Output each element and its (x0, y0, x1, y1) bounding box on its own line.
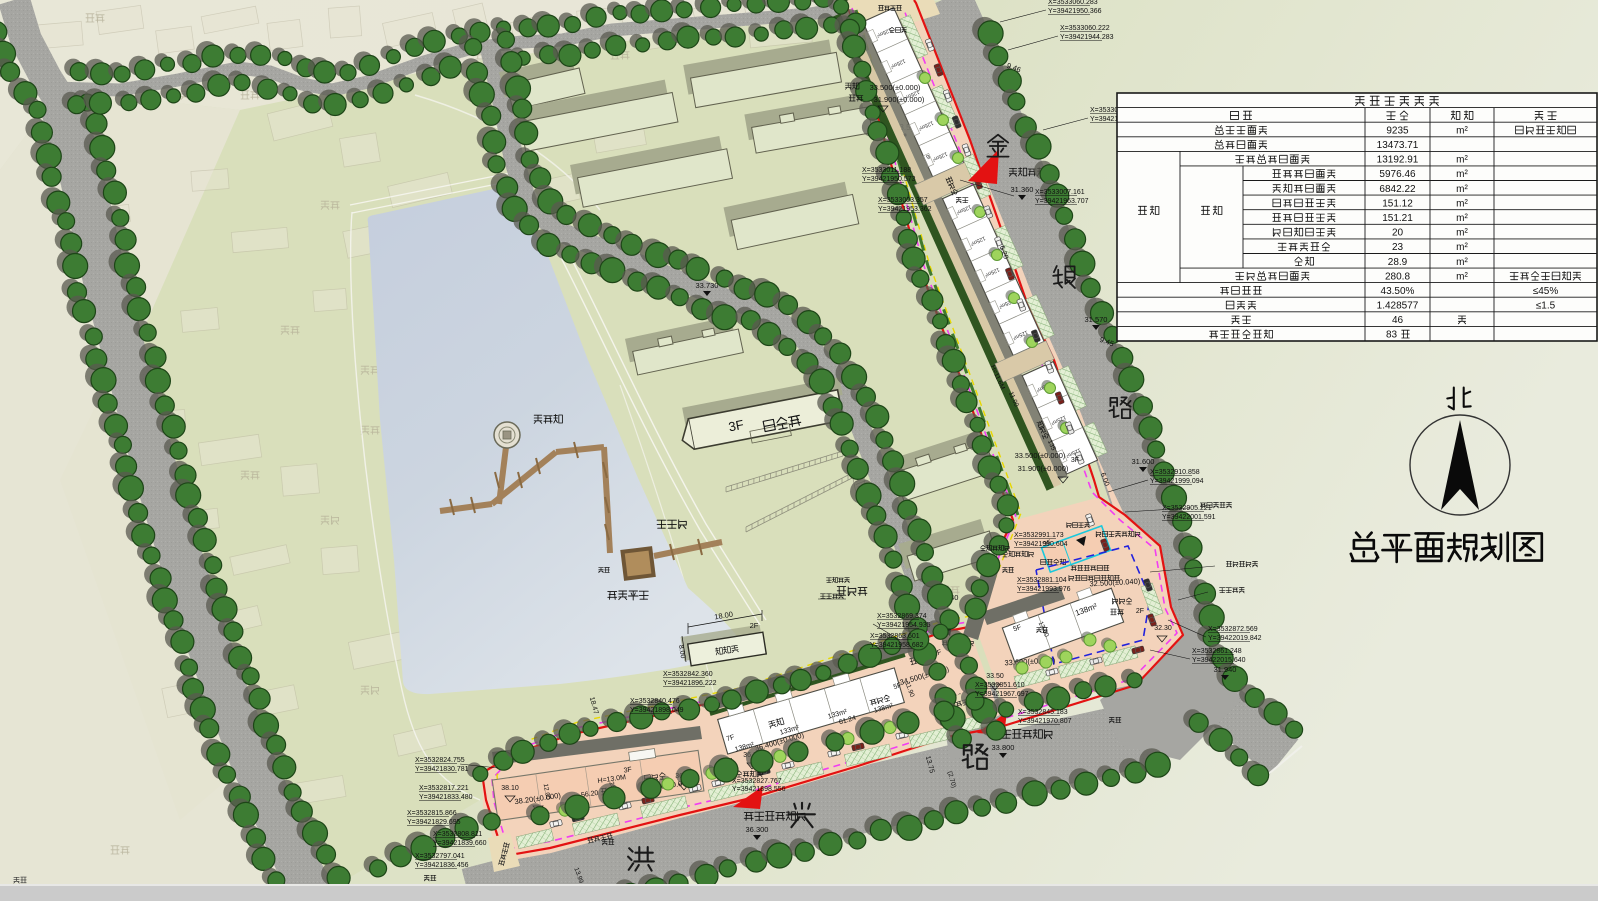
svg-text:32.30: 32.30 (1154, 625, 1172, 632)
svg-text:X=3532991.173: X=3532991.173 (1014, 532, 1064, 539)
svg-text:X=3532872.569: X=3532872.569 (1208, 626, 1258, 633)
svg-text:23: 23 (1392, 242, 1404, 253)
svg-text:33.800: 33.800 (992, 743, 1015, 752)
svg-text:X=3533060.283: X=3533060.283 (1048, 0, 1098, 6)
svg-text:33.50: 33.50 (986, 673, 1004, 680)
svg-text:X=3533011.188: X=3533011.188 (862, 167, 911, 174)
svg-text:Y=39421950.573: Y=39421950.573 (862, 176, 916, 183)
svg-text:5976.46: 5976.46 (1379, 169, 1416, 180)
svg-text:Y=39421833.480: Y=39421833.480 (419, 794, 473, 801)
svg-text:Y=39421954.935: Y=39421954.935 (877, 622, 931, 629)
svg-text:m²: m² (1456, 184, 1468, 195)
svg-text:X=3533003.357: X=3533003.357 (878, 197, 928, 204)
svg-text:31.600: 31.600 (1132, 457, 1155, 466)
svg-text:Y=39421953.362: Y=39421953.362 (878, 206, 932, 213)
svg-text:33.500(±0.000): 33.500(±0.000) (1015, 451, 1066, 460)
svg-text:X=3532861.248: X=3532861.248 (1192, 648, 1242, 655)
svg-text:Y=39421836.456: Y=39421836.456 (415, 862, 469, 869)
svg-text:Y=39422001.591: Y=39422001.591 (1162, 514, 1216, 521)
svg-text:Y=39421963.707: Y=39421963.707 (1035, 198, 1089, 205)
svg-text:m²: m² (1456, 257, 1468, 268)
svg-text:X=3532863.601: X=3532863.601 (870, 633, 920, 640)
svg-text:m²: m² (1456, 169, 1468, 180)
svg-text:X=3532881.104: X=3532881.104 (1017, 577, 1067, 584)
svg-text:31.900(±0.000): 31.900(±0.000) (1018, 464, 1069, 473)
svg-text:151.21: 151.21 (1382, 213, 1413, 224)
svg-text:Y=39422015.640: Y=39422015.640 (1192, 657, 1246, 664)
svg-text:31.940: 31.940 (1214, 665, 1237, 674)
svg-text:X=3532797.041: X=3532797.041 (415, 853, 465, 860)
svg-text:Y=39421993.976: Y=39421993.976 (1017, 586, 1071, 593)
svg-text:≤45%: ≤45% (1533, 286, 1559, 297)
svg-text:33.500(±0.000): 33.500(±0.000) (870, 83, 921, 92)
svg-text:Y=39421967.697: Y=39421967.697 (975, 691, 1029, 698)
svg-text:X=3532845.183: X=3532845.183 (1018, 709, 1068, 716)
svg-text:Y=39421830.781: Y=39421830.781 (415, 766, 469, 773)
svg-text:43.50%: 43.50% (1381, 286, 1415, 297)
svg-text:46: 46 (1392, 315, 1404, 326)
svg-text:83: 83 (1386, 330, 1398, 341)
svg-text:9235: 9235 (1386, 126, 1409, 137)
svg-text:X=3532910.858: X=3532910.858 (1150, 469, 1200, 476)
svg-text:Y=39421950.366: Y=39421950.366 (1048, 8, 1102, 15)
svg-text:X=3533007.161: X=3533007.161 (1035, 189, 1085, 196)
svg-text:38.10: 38.10 (501, 785, 519, 792)
svg-text:280.8: 280.8 (1385, 271, 1410, 282)
svg-text:X=3532905.221: X=3532905.221 (1162, 505, 1212, 512)
svg-text:m²: m² (1456, 155, 1468, 166)
svg-text:6842.22: 6842.22 (1379, 184, 1416, 195)
svg-text:Y=39422019.842: Y=39422019.842 (1208, 635, 1262, 642)
svg-text:Y=39421958.682: Y=39421958.682 (870, 642, 924, 649)
svg-text:Y=39421839.660: Y=39421839.660 (433, 840, 487, 847)
svg-text:Y=39421896.222: Y=39421896.222 (663, 680, 717, 687)
svg-text:X=3532840.476: X=3532840.476 (630, 698, 680, 705)
svg-text:Y=39421898.049: Y=39421898.049 (630, 707, 684, 714)
svg-text:Y=39421970.807: Y=39421970.807 (1018, 718, 1072, 725)
svg-text:X=3532815.866: X=3532815.866 (407, 810, 457, 817)
svg-text:m²: m² (1456, 242, 1468, 253)
svg-text:m²: m² (1456, 126, 1468, 137)
svg-text:Y=39421898.556: Y=39421898.556 (732, 786, 786, 793)
svg-text:m²: m² (1456, 198, 1468, 209)
svg-text:X=3532817.221: X=3532817.221 (419, 785, 469, 792)
svg-text:X=3532824.755: X=3532824.755 (415, 757, 465, 764)
svg-text:13473.71: 13473.71 (1377, 140, 1419, 151)
svg-text:Y=39421944.283: Y=39421944.283 (1060, 34, 1114, 41)
svg-text:13192.91: 13192.91 (1377, 155, 1419, 166)
svg-text:m²: m² (1456, 271, 1468, 282)
svg-text:Y=39421829.695: Y=39421829.695 (407, 819, 461, 826)
svg-text:X=3532827.767: X=3532827.767 (732, 778, 782, 785)
svg-text:20: 20 (1392, 228, 1404, 239)
svg-text:Y=39421990.604: Y=39421990.604 (1014, 541, 1068, 548)
svg-text:36.300: 36.300 (746, 825, 769, 834)
svg-text:X=3532851.610: X=3532851.610 (975, 682, 1025, 689)
svg-text:1.428577: 1.428577 (1377, 301, 1419, 312)
svg-text:X=3532808.811: X=3532808.811 (433, 831, 482, 838)
svg-text:31.360: 31.360 (1011, 185, 1034, 194)
svg-text:m²: m² (1456, 213, 1468, 224)
svg-text:X=3533060.222: X=3533060.222 (1060, 25, 1110, 32)
svg-text:2F: 2F (750, 621, 759, 630)
svg-text:31.570: 31.570 (1085, 315, 1108, 324)
svg-text:33.730: 33.730 (696, 281, 719, 290)
svg-text:3F: 3F (1071, 457, 1079, 464)
svg-text:m²: m² (1456, 228, 1468, 239)
svg-text:2F: 2F (1136, 608, 1144, 615)
svg-text:151.12: 151.12 (1382, 198, 1413, 209)
svg-text:28.9: 28.9 (1388, 257, 1408, 268)
svg-text:Y=39421999.094: Y=39421999.094 (1150, 478, 1204, 485)
svg-text:X=3532842.360: X=3532842.360 (663, 671, 713, 678)
svg-text:3F: 3F (727, 417, 745, 435)
svg-text:X=3532869.374: X=3532869.374 (877, 613, 927, 620)
svg-text:31.900(±0.000): 31.900(±0.000) (874, 95, 925, 104)
svg-text:≤1.5: ≤1.5 (1536, 301, 1556, 312)
